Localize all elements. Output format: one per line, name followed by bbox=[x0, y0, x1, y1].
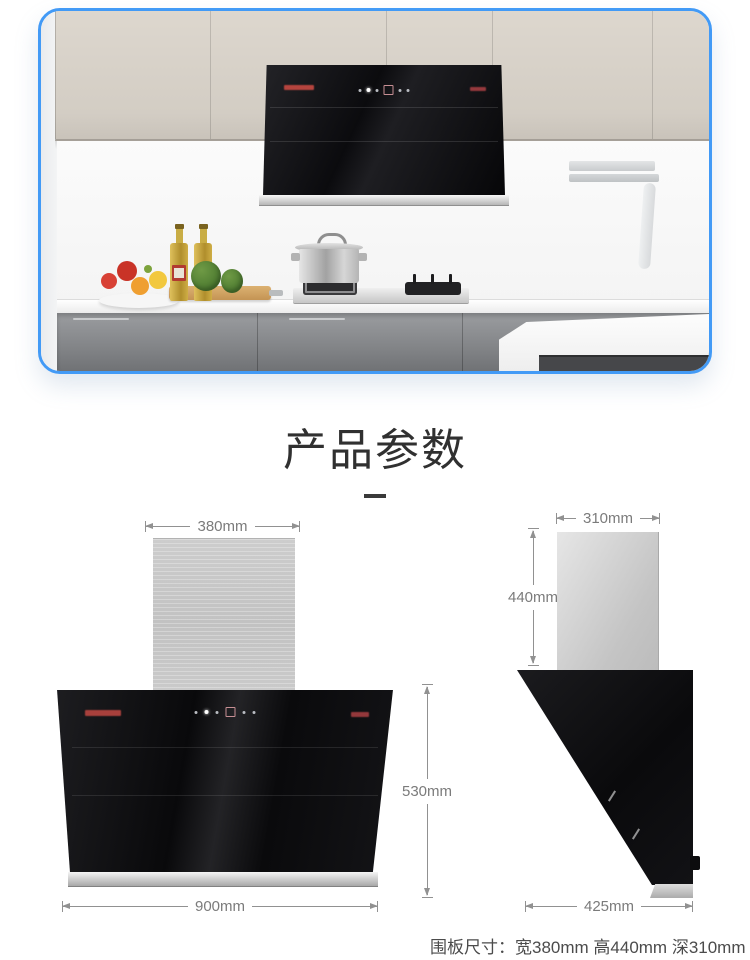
control-dot-icon bbox=[407, 89, 410, 92]
model-label bbox=[470, 87, 486, 91]
bottle-label bbox=[172, 265, 186, 281]
glass-reflection bbox=[608, 790, 616, 801]
touch-controls bbox=[359, 85, 410, 95]
front-view-hood-body bbox=[55, 690, 395, 872]
side-view-hood-body bbox=[517, 670, 693, 885]
brand-logo bbox=[85, 710, 121, 716]
control-dot-icon bbox=[195, 711, 198, 714]
dim-side-bottom-width: 425mm bbox=[525, 899, 693, 914]
orange bbox=[131, 277, 149, 295]
yellow-pepper bbox=[149, 271, 167, 289]
side-view-switch-tab bbox=[690, 856, 700, 870]
front-view-chimney bbox=[153, 538, 295, 691]
control-dot-icon bbox=[376, 89, 379, 92]
grate-prong bbox=[449, 274, 452, 284]
display-screen-icon bbox=[384, 85, 394, 95]
control-dot-icon bbox=[216, 711, 219, 714]
dim-label: 380mm bbox=[190, 519, 254, 534]
island-opening bbox=[539, 355, 709, 373]
power-dot-icon bbox=[367, 88, 371, 92]
dim-label: 425mm bbox=[577, 899, 641, 914]
wall-rail bbox=[569, 161, 655, 171]
dim-side-height: 440mm bbox=[510, 526, 556, 668]
cabinet-handle bbox=[289, 318, 345, 320]
broccoli bbox=[191, 261, 221, 291]
title-underline bbox=[364, 494, 386, 498]
hood-base-strip bbox=[259, 195, 509, 206]
section-title: 产品参数 bbox=[0, 414, 750, 478]
cabinet-seam bbox=[652, 11, 653, 139]
side-view-base-foot bbox=[650, 884, 693, 898]
dim-label: 530mm bbox=[402, 779, 452, 804]
bottle-neck bbox=[176, 229, 183, 243]
cutting-board-handle bbox=[269, 290, 283, 296]
grate-prong bbox=[413, 274, 416, 284]
brand-logo bbox=[284, 85, 314, 90]
hood-seam bbox=[72, 795, 378, 796]
dim-side-top-width: 310mm bbox=[556, 511, 660, 526]
dim-label: 900mm bbox=[188, 899, 252, 914]
broccoli bbox=[221, 269, 243, 293]
control-dot-icon bbox=[253, 711, 256, 714]
control-dot-icon bbox=[243, 711, 246, 714]
stove-burner-right bbox=[405, 282, 461, 295]
kitchen-photo-card bbox=[38, 8, 712, 374]
front-view-base-strip bbox=[68, 872, 378, 887]
product-detail-page: 产品参数 380mm 530mm 900mm bbox=[0, 0, 750, 960]
cooking-pot bbox=[299, 249, 359, 283]
hood-seam bbox=[72, 747, 378, 748]
cabinet-seam bbox=[462, 313, 463, 371]
model-label bbox=[351, 712, 369, 717]
grate-prong bbox=[431, 274, 434, 284]
glass-reflection bbox=[632, 828, 640, 839]
cabinet-handle bbox=[73, 318, 129, 320]
control-dot-icon bbox=[399, 89, 402, 92]
bottle-neck bbox=[200, 229, 207, 243]
tomato bbox=[101, 273, 117, 289]
display-screen-icon bbox=[226, 707, 236, 717]
fruit-plate bbox=[99, 293, 179, 308]
hood-seam bbox=[270, 141, 498, 142]
cabinet-seam bbox=[257, 313, 258, 371]
dim-label: 310mm bbox=[576, 511, 640, 526]
control-dot-icon bbox=[359, 89, 362, 92]
hood-seam bbox=[270, 107, 498, 108]
panel-size-note: 围板尺寸：宽380mm 高440mm 深310mm bbox=[430, 933, 746, 958]
pot-side-handle bbox=[291, 253, 300, 261]
cabinet-seam bbox=[210, 11, 211, 139]
range-hood-photo bbox=[263, 65, 505, 195]
power-dot-icon bbox=[205, 710, 209, 714]
brushed-steel-texture bbox=[153, 539, 295, 691]
dim-label: 440mm bbox=[508, 585, 558, 610]
touch-controls bbox=[195, 707, 256, 717]
wall-rail-lower bbox=[569, 174, 659, 182]
side-view-chimney bbox=[557, 532, 659, 671]
oil-bottle bbox=[170, 224, 188, 301]
dim-front-height: 530mm bbox=[404, 682, 450, 900]
pot-side-handle bbox=[358, 253, 367, 261]
dim-front-top-width: 380mm bbox=[145, 519, 300, 534]
green-fruit bbox=[144, 265, 152, 273]
dim-front-bottom-width: 900mm bbox=[62, 899, 378, 914]
bottle-body bbox=[170, 243, 188, 301]
